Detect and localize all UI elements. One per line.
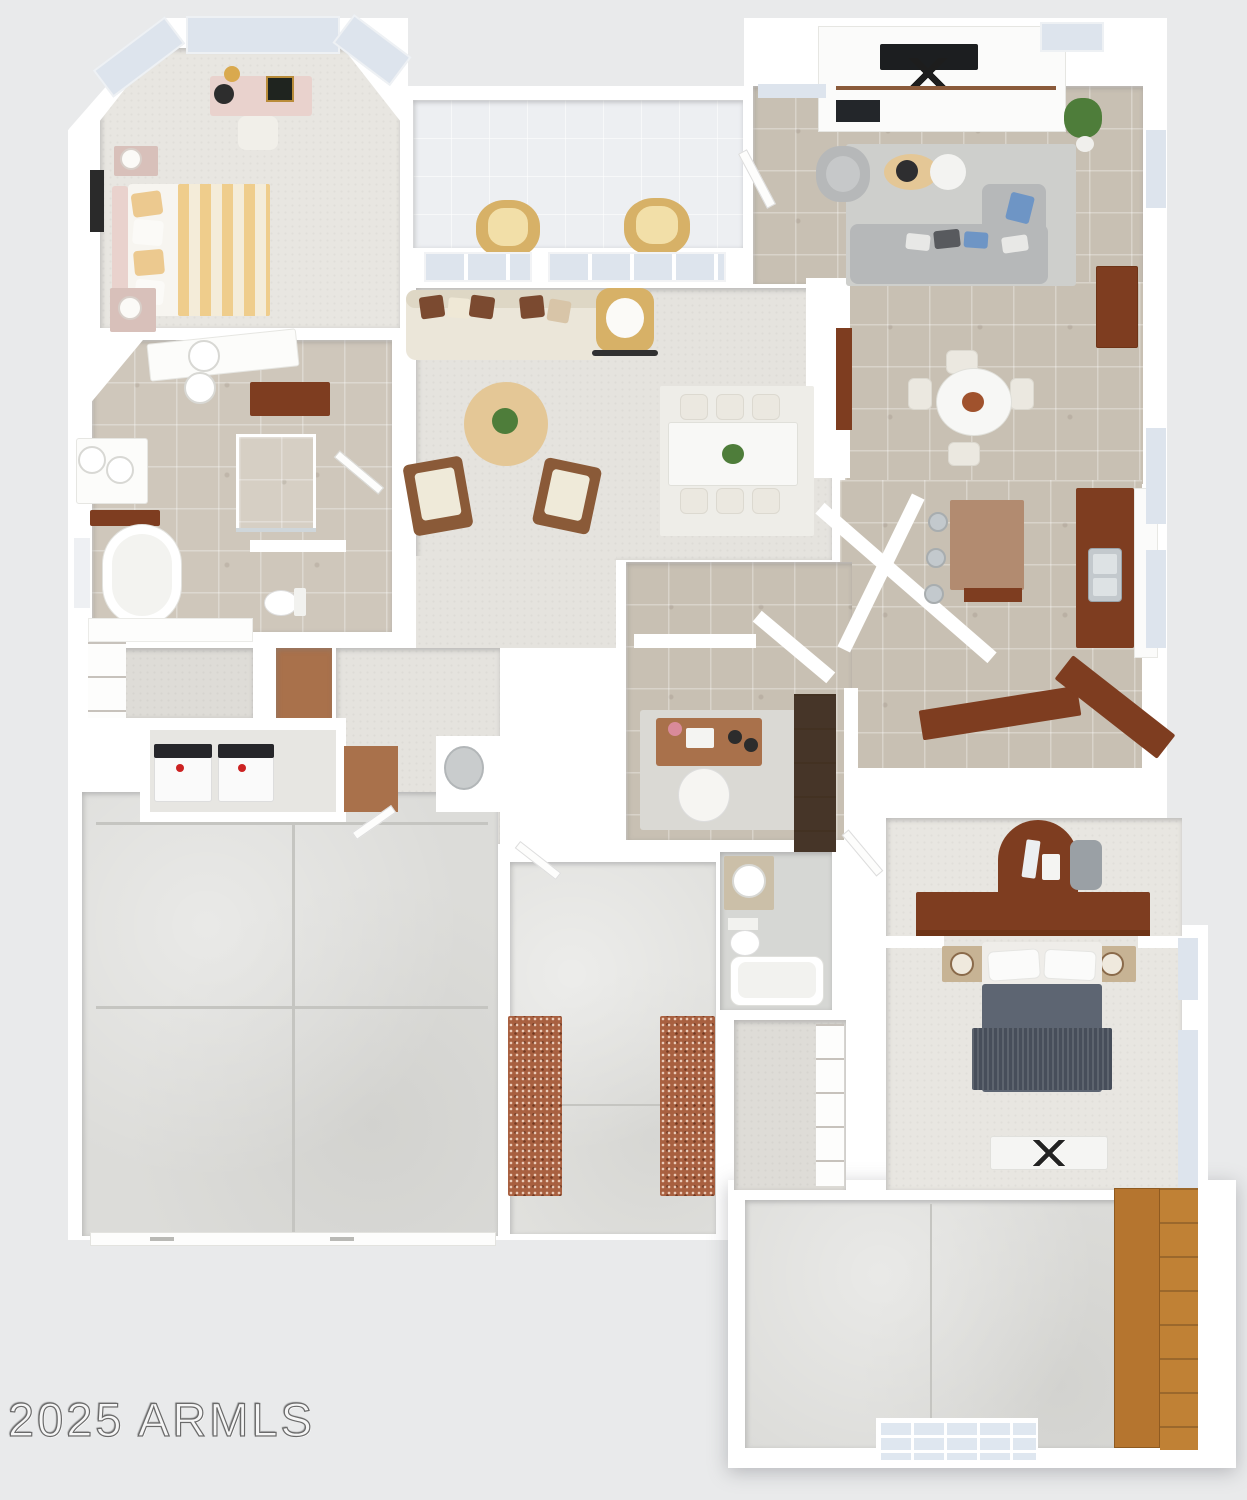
chair-dining-6: [752, 488, 780, 514]
wicker-cushion-2: [636, 206, 678, 244]
ceiling-fan: [896, 58, 960, 88]
dryer-panel: [218, 744, 274, 758]
office-desk-item-1: [728, 730, 742, 744]
pillow-sofa-1: [419, 294, 446, 319]
stool-1: [928, 512, 948, 532]
plant-pot-family: [1076, 136, 1094, 152]
hallbath-toilet-bowl: [730, 930, 760, 956]
bed1-pillow-2: [132, 219, 164, 247]
cabinet-primary-north: [250, 382, 330, 416]
desk-nook-counter-edge: [916, 930, 1150, 936]
closet-shelf-north: [88, 618, 253, 642]
coffee-table-plant: [492, 408, 518, 434]
lamp-1a: [120, 148, 142, 170]
sink-primary-2: [184, 372, 216, 404]
desk-lamp-base: [214, 84, 234, 104]
sink-primary-3: [78, 446, 106, 474]
pillow-sofa-5: [546, 298, 571, 323]
garage-door-handle-2: [330, 1237, 354, 1241]
chair-dining-5: [716, 488, 744, 514]
lamp-2b: [1100, 952, 1124, 976]
pillow-sofa-4: [519, 295, 545, 319]
window-bedroom2-1: [1178, 938, 1198, 1000]
plant-family: [1064, 98, 1102, 138]
window-family-top: [758, 84, 826, 98]
garage2-shelving: [1160, 1188, 1198, 1450]
lamp-2a: [950, 952, 974, 976]
toilet-primary-tank: [294, 588, 306, 616]
toilet-primary-bowl: [264, 590, 298, 616]
chair-dining-1: [680, 394, 708, 420]
dresser-family: [1096, 266, 1138, 348]
window-bath-west: [74, 538, 90, 608]
wall-bedroom2-left: [886, 936, 944, 948]
window-family-right: [1146, 130, 1166, 208]
hanging-chair-cushion: [606, 298, 644, 338]
media-console-dark: [836, 100, 880, 122]
desk-nook-keyboard: [1042, 854, 1060, 880]
bed2-throw: [972, 1028, 1112, 1090]
floor-living-walkway: [416, 556, 616, 648]
page: { "meta": {"canvas_width": 1247, "canvas…: [0, 0, 1247, 1500]
pillow-dark: [933, 229, 961, 250]
window-bay-center: [186, 16, 340, 54]
hallbath-sink: [732, 864, 766, 898]
bed1-pillow-1: [130, 190, 163, 218]
floor-entry-porch: [413, 100, 743, 248]
chair-dining-4: [680, 488, 708, 514]
garage-seam-horizontal: [96, 1006, 488, 1009]
office-flowers: [668, 722, 682, 736]
wall-bedroom2-right: [1138, 936, 1182, 948]
cabinet-primary-west: [90, 510, 160, 526]
nook-chair-left: [908, 378, 932, 410]
flex-seam: [562, 1104, 660, 1106]
garage2-wood-panel: [1114, 1188, 1160, 1448]
wall-office-right: [844, 688, 858, 886]
garage2-seam: [930, 1204, 932, 1444]
water-heater: [444, 746, 484, 790]
armchair-family-seat: [826, 156, 860, 192]
office-bookcase: [794, 694, 836, 852]
sink-primary-4: [106, 456, 134, 484]
kitchen-sink-basin-1: [1093, 554, 1117, 574]
bathtub-inner: [112, 534, 172, 616]
bed2-pillow-2: [1043, 949, 1096, 982]
desk-chair-bedroom1: [238, 116, 278, 150]
hanging-chair-base: [592, 350, 658, 356]
window-porch-1: [424, 252, 532, 282]
nook-chair-bottom: [948, 442, 980, 466]
sink-primary-1: [188, 340, 220, 372]
garage-seam-vertical: [292, 824, 295, 1232]
bed1-pillow-3: [133, 249, 165, 277]
chair-dining-3: [752, 394, 780, 420]
window-family-corner: [1040, 22, 1104, 52]
washer-panel: [154, 744, 212, 758]
stool-2: [926, 548, 946, 568]
pillow-blue-2: [963, 231, 988, 249]
window-porch-2: [548, 252, 726, 282]
window-kitchen-2: [1146, 550, 1166, 648]
dining-centerpiece: [722, 444, 744, 464]
wall-bath-toilet: [250, 540, 346, 552]
nook-chair-right: [1010, 378, 1034, 410]
hall-wood-mat: [344, 746, 398, 812]
hallbath-tub-inner: [738, 962, 816, 998]
pillow-sofa-3: [469, 294, 496, 319]
runner-mat-1: [508, 1016, 562, 1196]
fireplace-niche: [836, 328, 852, 430]
media-shelf-line: [836, 86, 1056, 90]
washer-indicator: [176, 764, 184, 772]
watermark: 2025 ARMLS: [8, 1392, 315, 1447]
stool-3: [924, 584, 944, 604]
desk-lamp-shade: [224, 66, 240, 82]
bed2-pillow-1: [987, 948, 1041, 982]
office-desk-item-2: [744, 738, 758, 752]
coffee-table-tray: [896, 160, 918, 182]
lamp-1b: [118, 296, 142, 320]
kitchen-island: [950, 500, 1024, 590]
wall-art-bedroom1: [90, 170, 104, 232]
bed1-duvet: [178, 184, 270, 316]
dryer-indicator: [238, 764, 246, 772]
pillow-light-1: [905, 233, 931, 251]
pillow-sofa-2: [447, 297, 471, 319]
accent-chair-1-cushion: [414, 467, 462, 521]
window-kitchen-1: [1146, 428, 1166, 524]
side-table-family: [930, 154, 966, 190]
hallbath-toilet-tank: [728, 918, 758, 930]
kitchen-sink-basin-2: [1093, 578, 1117, 596]
shower-glass: [236, 528, 316, 532]
floor-plan-rendering: [0, 0, 1247, 1500]
closet2-shelf: [816, 1024, 844, 1186]
closet-shelf-west: [88, 642, 126, 718]
desk-picture-frame: [266, 76, 294, 102]
kitchen-island-base: [964, 588, 1022, 602]
runner-mat-2: [660, 1016, 715, 1196]
nook-centerpiece: [962, 392, 984, 412]
bench-x-legs: [1006, 1140, 1092, 1166]
chair-dining-2: [716, 394, 744, 420]
exterior-above-porch: [408, 0, 744, 86]
desk-nook-chair: [1070, 840, 1102, 890]
floor-garage-main: [82, 792, 498, 1236]
office-chair: [678, 768, 730, 822]
wall-office-top: [634, 634, 756, 648]
wicker-cushion-1: [488, 208, 528, 246]
shower: [236, 434, 316, 532]
garage-door-handle-1: [150, 1237, 174, 1241]
garage2-door-window: [876, 1418, 1038, 1462]
office-laptop: [686, 728, 714, 748]
window-bedroom2-2: [1178, 1030, 1198, 1188]
